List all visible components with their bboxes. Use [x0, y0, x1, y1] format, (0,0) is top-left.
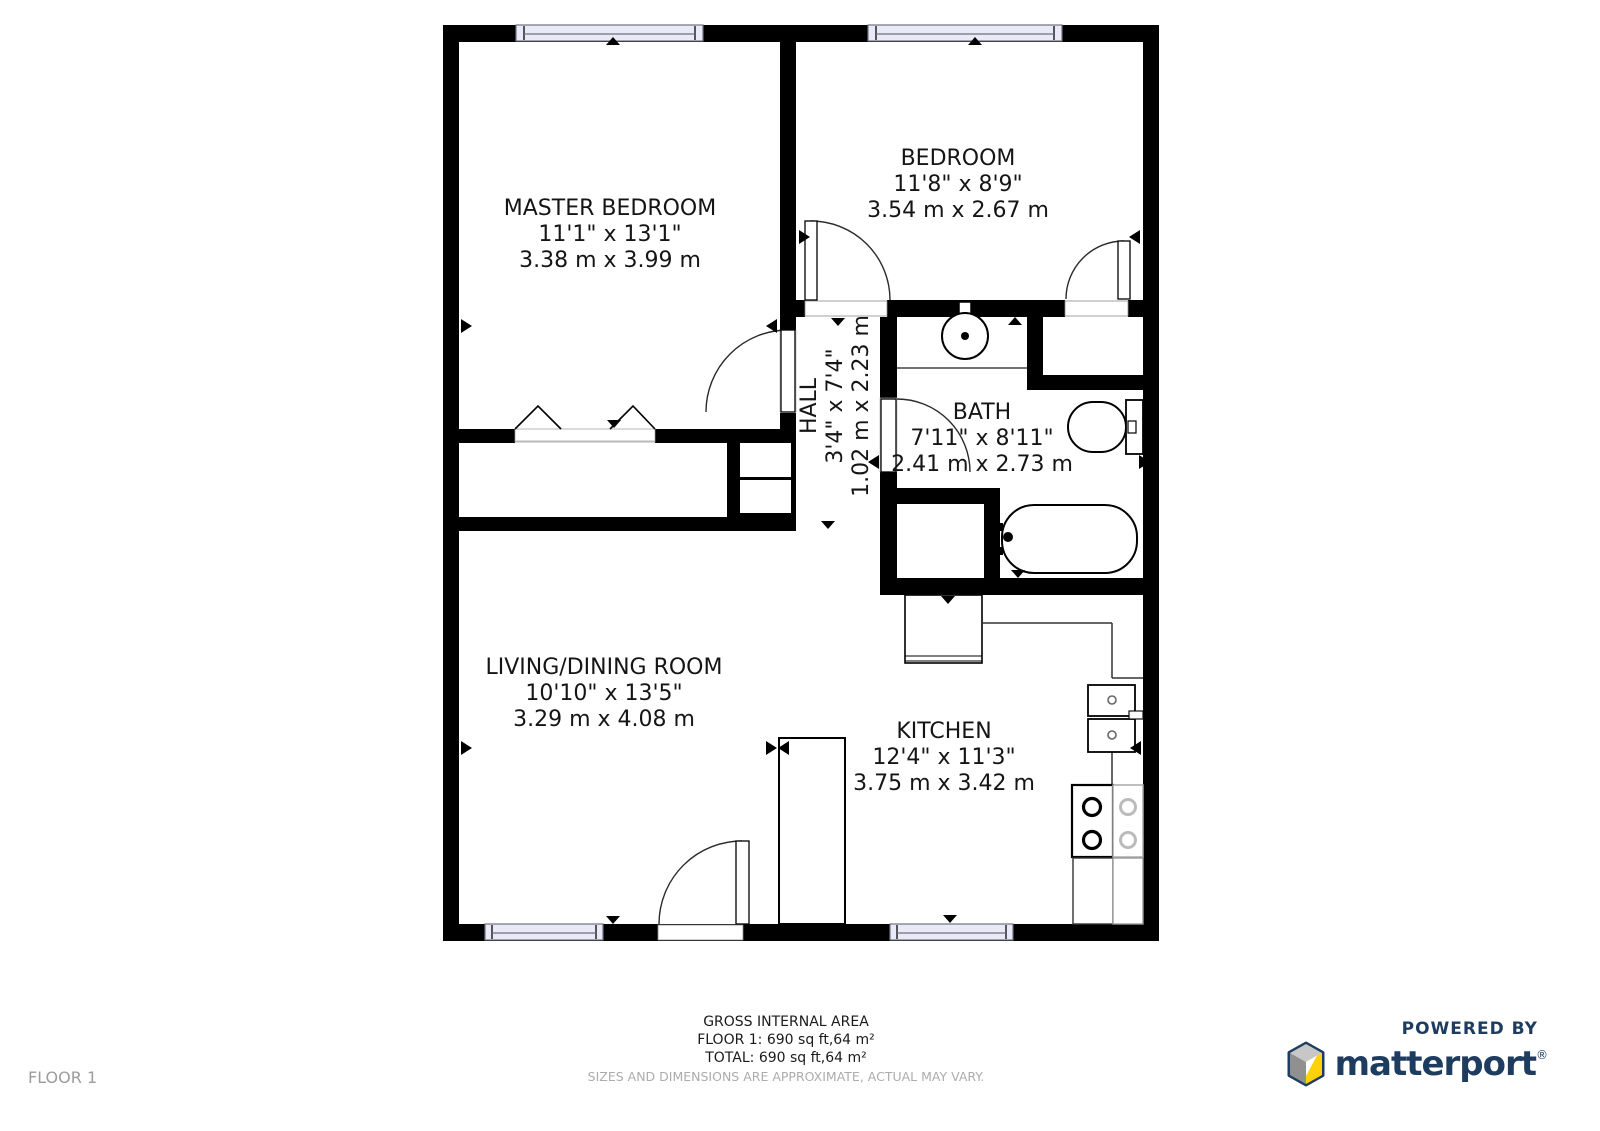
wall-master-closet-left: [459, 429, 515, 443]
shelf-cell-top: [740, 443, 791, 477]
room-name: LIVING/DINING ROOM: [486, 655, 723, 681]
room-name: BEDROOM: [867, 146, 1049, 172]
marker: [1011, 570, 1025, 578]
threshold-bedroom-door: [805, 301, 887, 316]
threshold-patio-door: [658, 925, 743, 940]
wall-right: [1143, 25, 1159, 941]
door-leaf-master: [781, 330, 795, 412]
door-arc-master: [706, 330, 788, 412]
marker: [766, 741, 777, 755]
marker: [943, 915, 957, 923]
wall-bedroom-closet-bottom: [1027, 375, 1143, 390]
powered-by-text: POWERED BY: [1402, 1019, 1538, 1039]
wall-bath-closet-divider: [1027, 317, 1043, 375]
room-label-master-bedroom: MASTER BEDROOM 11'1" x 13'1" 3.38 m x 3.…: [504, 196, 716, 274]
room-dim-imperial: 3'4" x 7'4": [823, 315, 849, 497]
lower-counters: [1073, 858, 1143, 924]
wall-bath-inner-stub: [984, 504, 1000, 578]
marker: [607, 420, 621, 428]
window-kitchen-bottom: [890, 924, 1013, 940]
registered-mark: ®: [1536, 1045, 1548, 1065]
floorplan-canvas: MASTER BEDROOM 11'1" x 13'1" 3.38 m x 3.…: [0, 0, 1600, 1131]
matterport-wordmark: matterport: [1335, 1045, 1536, 1083]
room-dim-imperial: 11'8" x 8'9": [867, 172, 1049, 198]
wall-bath-bottom: [880, 578, 1159, 595]
total-area: TOTAL: 690 sq ft,64 m²: [486, 1049, 1086, 1067]
toilet: [1068, 400, 1143, 454]
marker: [1129, 230, 1140, 244]
marker: [1008, 317, 1022, 325]
room-dim-imperial: 12'4" x 11'3": [853, 745, 1035, 771]
wall-living-top: [459, 517, 796, 531]
room-name: MASTER BEDROOM: [504, 196, 716, 222]
door-leaf-patio: [736, 841, 749, 924]
disclaimer: SIZES AND DIMENSIONS ARE APPROXIMATE, AC…: [486, 1068, 1086, 1086]
room-dim-imperial: 10'10" x 13'5": [486, 681, 723, 707]
window-master-top: [516, 25, 703, 41]
wall-bedroom-bottom-b: [887, 300, 1065, 317]
room-dim-metric: 3.38 m x 3.99 m: [504, 248, 716, 274]
room-dim-metric: 1.02 m x 2.23 m: [849, 315, 875, 497]
door-leaf-bedroom-closet: [1118, 241, 1130, 299]
floor-label: FLOOR 1: [28, 1068, 97, 1087]
bathtub: [994, 505, 1137, 573]
refrigerator: [905, 595, 982, 663]
wall-hall-bath-lower: [880, 472, 897, 578]
room-dim-metric: 3.75 m x 3.42 m: [853, 771, 1035, 797]
room-name: KITCHEN: [853, 719, 1035, 745]
room-label-kitchen: KITCHEN 12'4" x 11'3" 3.75 m x 3.42 m: [853, 719, 1035, 797]
threshold-master-closet: [515, 429, 655, 442]
room-dim-metric: 3.54 m x 2.67 m: [867, 198, 1049, 224]
wall-hall-bath-upper: [880, 317, 897, 398]
room-dim-imperial: 11'1" x 13'1": [504, 222, 716, 248]
wall-master-bedroom-divider: [780, 25, 796, 330]
room-label-living-dining: LIVING/DINING ROOM 10'10" x 13'5" 3.29 m…: [486, 655, 723, 733]
stove: [1072, 785, 1143, 857]
shelf-cell-bottom: [740, 480, 791, 513]
marker: [766, 319, 777, 333]
matterport-cube-icon: [1285, 1041, 1327, 1087]
wall-bedroom-bottom-c: [1128, 300, 1143, 317]
window-living-bottom: [485, 924, 603, 940]
room-label-bedroom: BEDROOM 11'8" x 8'9" 3.54 m x 2.67 m: [867, 146, 1049, 224]
wall-left: [443, 25, 459, 941]
wall-living-kitchen-divider: [779, 738, 845, 924]
room-name: HALL: [797, 315, 823, 497]
room-dim-imperial: 7'11" x 8'11": [891, 426, 1073, 452]
gross-internal-area-title: GROSS INTERNAL AREA: [486, 1013, 1086, 1031]
footer-area-summary: GROSS INTERNAL AREA FLOOR 1: 690 sq ft,6…: [486, 1013, 1086, 1086]
floor1-area: FLOOR 1: 690 sq ft,64 m²: [486, 1031, 1086, 1049]
room-dim-metric: 2.41 m x 2.73 m: [891, 452, 1073, 478]
room-dim-metric: 3.29 m x 4.08 m: [486, 707, 723, 733]
room-label-bath: BATH 7'11" x 8'11" 2.41 m x 2.73 m: [891, 400, 1073, 478]
marker: [461, 741, 472, 755]
marker: [461, 319, 472, 333]
kitchen-sink: [1088, 685, 1143, 752]
wall-master-closet-right: [655, 429, 727, 443]
marker: [606, 916, 620, 924]
marker: [821, 521, 835, 529]
matterport-branding: POWERED BY matterport ®: [1285, 1019, 1548, 1087]
room-name: BATH: [891, 400, 1073, 426]
door-leaf-bedroom: [805, 221, 817, 300]
door-arc-patio: [659, 841, 742, 924]
door-arc-bedroom: [811, 221, 890, 300]
window-bedroom-top: [868, 25, 1062, 41]
door-arc-bedroom-closet: [1066, 241, 1124, 299]
room-label-hall: HALL 3'4" x 7'4" 1.02 m x 2.23 m: [797, 315, 875, 497]
floorplan-drawing: [0, 0, 1600, 1131]
wall-bath-inner-horizontal: [897, 488, 1000, 504]
threshold-bedroom-closet-door: [1065, 301, 1128, 316]
